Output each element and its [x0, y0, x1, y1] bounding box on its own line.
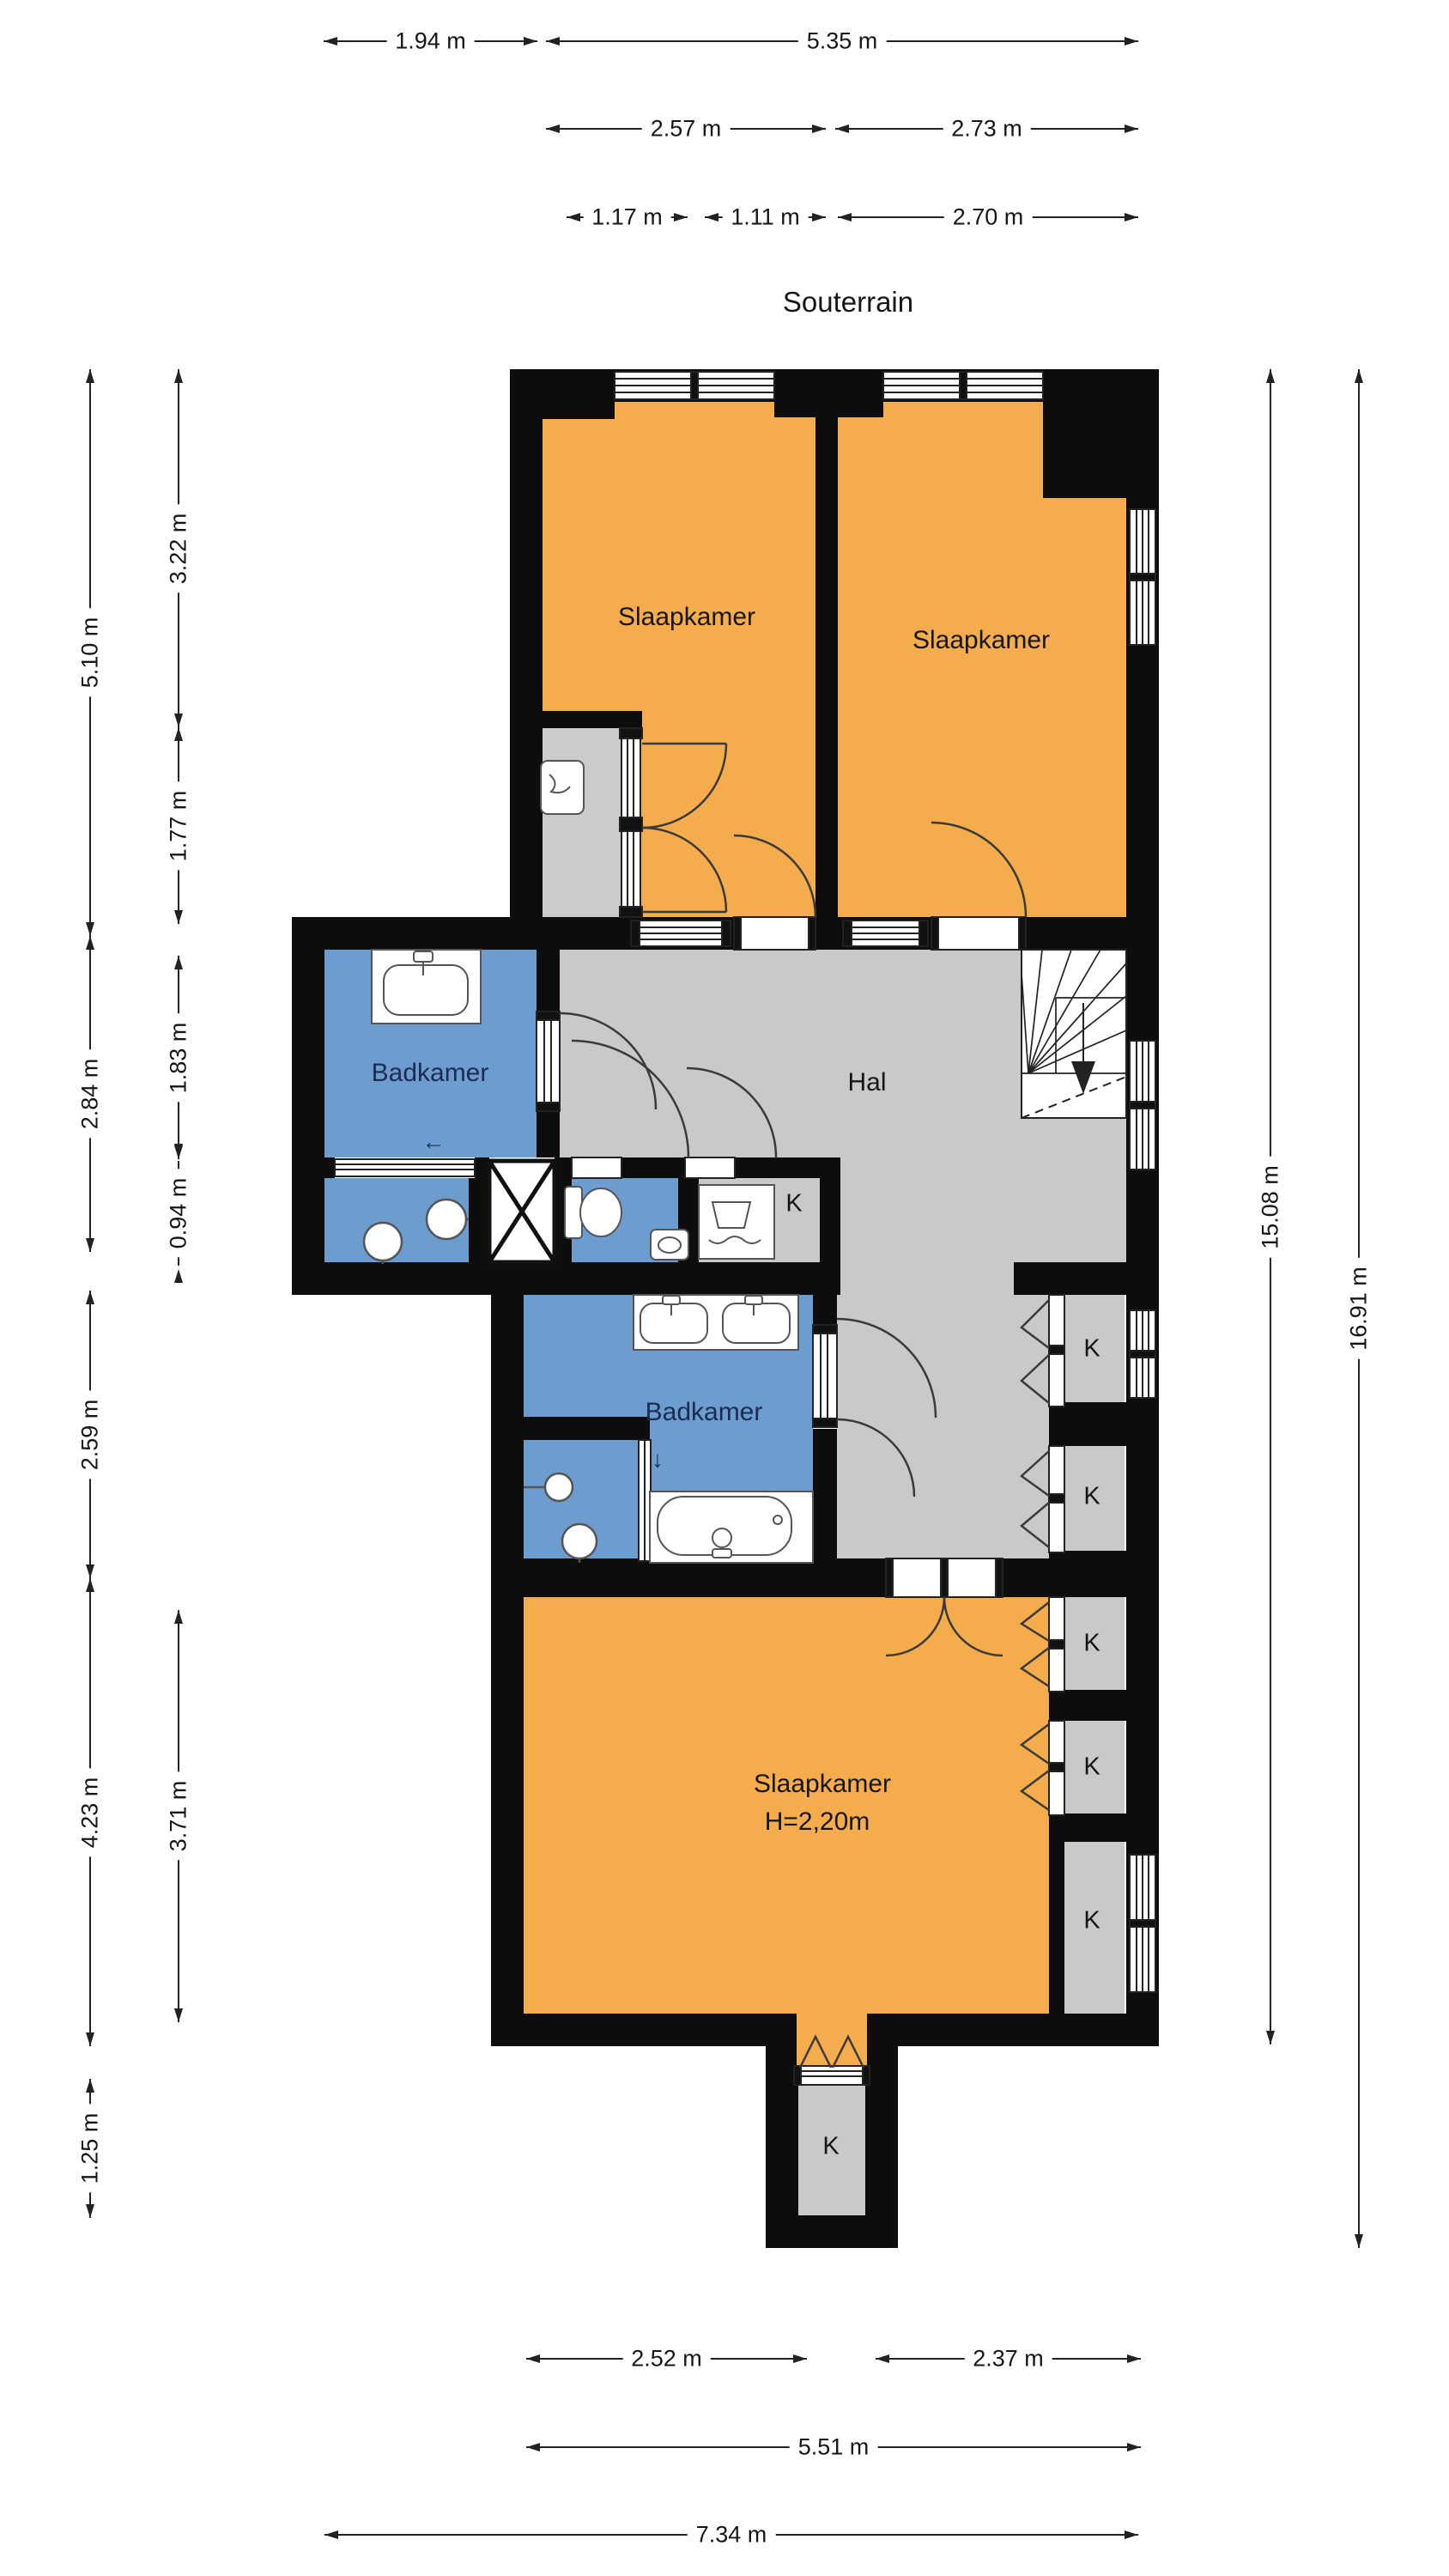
dimension-2.57m: 2.57 m — [546, 128, 826, 130]
dimension-5.51m: 5.51 m — [526, 2446, 1141, 2448]
washing-machine-icon — [699, 1185, 774, 1259]
dimension-label: 1.11 m — [722, 204, 809, 231]
dimension-2.59m: 2.59 m — [89, 1291, 91, 1578]
dimension-label: 2.73 m — [943, 116, 1031, 143]
dimension-label: 2.57 m — [642, 116, 731, 143]
closet-label-k4: K — [1083, 1753, 1100, 1782]
room-label-slaapkamer-2: Slaapkamer — [912, 626, 1050, 655]
plan-symbols — [0, 0, 1449, 2576]
dimension-label: 3.22 m — [166, 504, 192, 592]
dimension-label: 16.91 m — [1346, 1258, 1373, 1359]
room-label-slaapkamer-3: Slaapkamer — [754, 1770, 891, 1799]
dimension-1.77m: 1.77 m — [178, 727, 179, 924]
dimension-3.22m: 3.22 m — [178, 369, 179, 727]
dimension-1.25m: 1.25 m — [89, 2079, 91, 2218]
handbasin-icon — [541, 761, 688, 1260]
arrow-left-icon: ← — [422, 1129, 446, 1156]
dimension-label: 5.51 m — [790, 2434, 878, 2461]
arrow-down-icon: ↓ — [652, 1447, 664, 1473]
room-label-badkamer-2: Badkamer — [646, 1398, 763, 1427]
dimension-label: 4.23 m — [77, 1768, 104, 1856]
dimension-label: 1.94 m — [386, 28, 475, 55]
room-label-badkamer-1: Badkamer — [372, 1059, 489, 1088]
dimension-label: 2.84 m — [77, 1050, 104, 1139]
dimension-3.71m: 3.71 m — [178, 1610, 179, 2022]
room-label-hal: Hal — [847, 1068, 886, 1097]
dimension-16.91m: 16.91 m — [1358, 369, 1360, 2248]
dimension-label: 1.25 m — [77, 2105, 104, 2193]
dimension-1.17m: 1.17 m — [567, 216, 688, 218]
dimension-2.37m: 2.37 m — [876, 2358, 1141, 2360]
dimension-label: 5.10 m — [77, 609, 104, 697]
dimension-label: 2.59 m — [77, 1390, 104, 1479]
closet-label-k3: K — [1083, 1630, 1100, 1658]
dimension-1.11m: 1.11 m — [705, 216, 826, 218]
closet-label-k-bottom: K — [822, 2133, 839, 2161]
shaft-icon — [489, 1161, 555, 1262]
dimension-label: 1.17 m — [583, 204, 671, 231]
closet-label-k-laundry: K — [785, 1190, 802, 1218]
closet-label-k5: K — [1083, 1907, 1100, 1935]
dimension-2.73m: 2.73 m — [835, 128, 1138, 130]
dimension-1.94m: 1.94 m — [324, 40, 537, 42]
dimension-label: 5.35 m — [798, 28, 887, 55]
dimension-15.08m: 15.08 m — [1270, 369, 1271, 2044]
room-label-slaapkamer-1: Slaapkamer — [618, 603, 755, 632]
dimension-label: 2.70 m — [944, 204, 1033, 231]
dimension-4.23m: 4.23 m — [89, 1578, 91, 2046]
dimension-label: 2.52 m — [622, 2346, 711, 2372]
room-height-note: H=2,20m — [765, 1807, 870, 1837]
dimension-5.35m: 5.35 m — [546, 40, 1138, 42]
dimension-7.34m: 7.34 m — [324, 2534, 1138, 2536]
bathtub-icon — [650, 1492, 813, 1563]
dimension-label: 7.34 m — [688, 2522, 776, 2549]
dimension-2.52m: 2.52 m — [526, 2358, 807, 2360]
dimension-label: 1.83 m — [166, 1013, 192, 1102]
closet-label-k1: K — [1083, 1335, 1100, 1364]
dimension-label: 2.37 m — [964, 2346, 1052, 2372]
toilet-icon — [565, 1187, 621, 1238]
dimension-label: 15.08 m — [1258, 1157, 1284, 1258]
stairs-icon — [1022, 950, 1126, 1118]
dimension-5.10m: 5.10 m — [89, 369, 91, 936]
dimension-2.84m: 2.84 m — [89, 936, 91, 1252]
floorplan-souterrain: Souterrain — [0, 0, 1449, 2576]
dimension-label: 0.94 m — [166, 1170, 192, 1258]
dimension-1.83m: 1.83 m — [178, 956, 179, 1159]
shower-icon — [364, 1200, 597, 1563]
dimension-label: 3.71 m — [166, 1772, 192, 1861]
closet-label-k2: K — [1083, 1483, 1100, 1511]
dimension-2.70m: 2.70 m — [838, 216, 1138, 218]
dimension-0.94m: 0.94 m — [178, 1161, 179, 1266]
dimension-label: 1.77 m — [166, 781, 192, 870]
